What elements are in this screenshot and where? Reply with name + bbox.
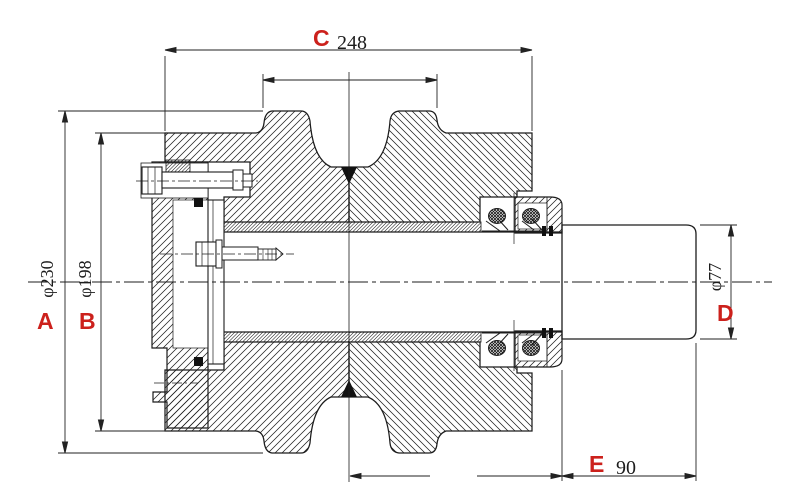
value-C: 248 — [337, 32, 367, 54]
bolt-shank — [162, 172, 233, 188]
bushing-lower — [224, 332, 481, 342]
roller-right-upper-section — [349, 111, 532, 222]
label-B: B — [79, 308, 96, 334]
label-E: E — [589, 451, 604, 477]
label-A: A — [37, 308, 54, 334]
retainer-bolt-thread — [258, 249, 276, 260]
value-A: φ230 — [37, 260, 57, 297]
bolt-hex-head — [142, 167, 162, 194]
engineering-drawing-canvas: C 248 φ230 A φ198 B φ77 D E 90 — [0, 0, 800, 500]
bushing-upper — [224, 222, 481, 232]
roller-right-lower-section — [349, 342, 532, 453]
label-C: C — [313, 25, 330, 51]
label-D: D — [717, 300, 734, 326]
bracket-cavity — [173, 200, 208, 348]
dimension-tread-width — [263, 74, 437, 108]
value-D: φ77 — [705, 263, 725, 291]
retainer-bolt-shank — [222, 247, 258, 260]
value-E: 90 — [616, 457, 636, 479]
lock-washer — [166, 160, 190, 172]
seal-ring-upper — [194, 198, 203, 207]
roller-section-drawing: C 248 φ230 A φ198 B φ77 D E 90 — [0, 0, 800, 500]
dimension-center-to-face — [350, 473, 562, 478]
seal-ring-lower — [194, 357, 203, 366]
value-B: φ198 — [75, 260, 95, 297]
dimension-C — [165, 47, 532, 131]
